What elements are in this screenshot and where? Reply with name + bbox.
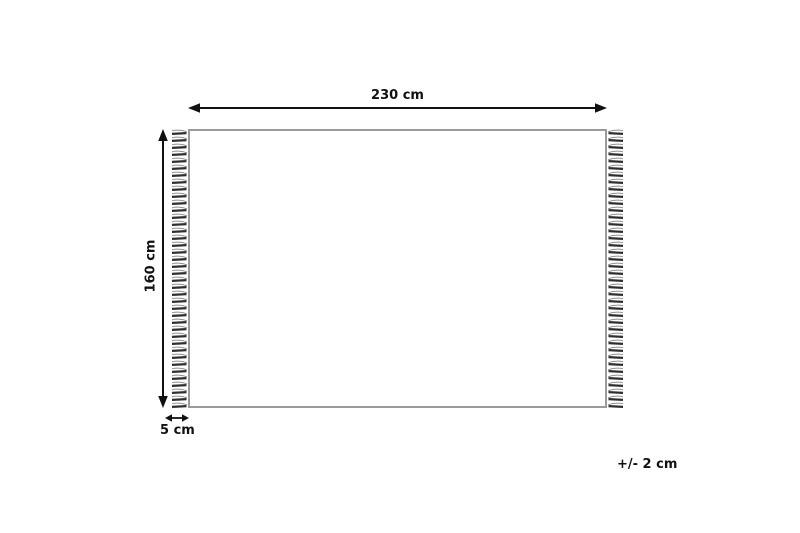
width-dimension-arrow xyxy=(188,101,607,115)
dimension-diagram: 230 cm 160 cm 5 cm +/- 2 cm xyxy=(0,0,800,533)
fringe-dimension-arrow xyxy=(165,413,189,423)
rug-outline xyxy=(188,129,607,408)
tolerance-label: +/- 2 cm xyxy=(617,458,677,471)
fringe-left-icon xyxy=(170,129,188,408)
fringe-dimension-label: 5 cm xyxy=(160,424,194,437)
width-dimension-label: 230 cm xyxy=(188,89,607,102)
height-dimension-label: 160 cm xyxy=(145,240,158,293)
fringe-right-icon xyxy=(607,129,625,408)
